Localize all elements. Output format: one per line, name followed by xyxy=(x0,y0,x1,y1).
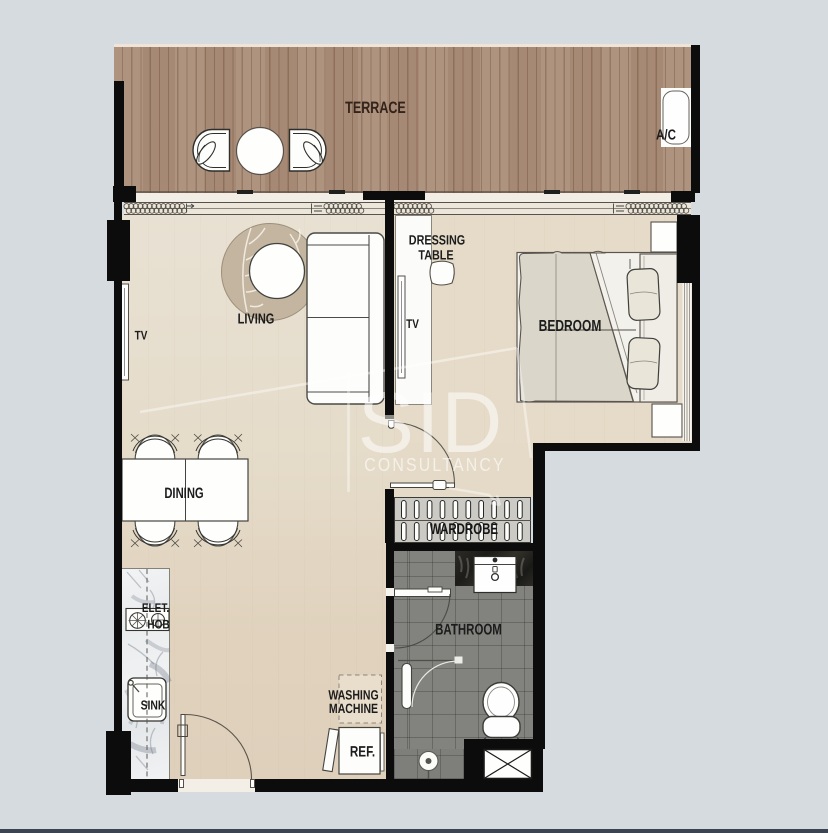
svg-text:MACHINE: MACHINE xyxy=(329,701,378,716)
svg-text:A/C: A/C xyxy=(656,128,676,144)
svg-text:SINK: SINK xyxy=(141,698,166,713)
svg-text:DRESSING: DRESSING xyxy=(409,233,465,248)
svg-text:DINING: DINING xyxy=(164,485,203,502)
svg-text:LIVING: LIVING xyxy=(238,311,275,327)
svg-text:TERRACE: TERRACE xyxy=(345,99,406,117)
svg-text:REF.: REF. xyxy=(350,744,375,761)
svg-text:BATHROOM: BATHROOM xyxy=(435,622,502,639)
svg-text:ELET.: ELET. xyxy=(142,601,169,615)
svg-text:BEDROOM: BEDROOM xyxy=(539,318,602,335)
svg-text:HOB: HOB xyxy=(147,617,169,631)
svg-text:TV: TV xyxy=(406,317,419,331)
svg-text:TABLE: TABLE xyxy=(418,248,453,263)
svg-text:TV: TV xyxy=(135,329,148,343)
svg-text:WARDROBE: WARDROBE xyxy=(430,521,498,538)
